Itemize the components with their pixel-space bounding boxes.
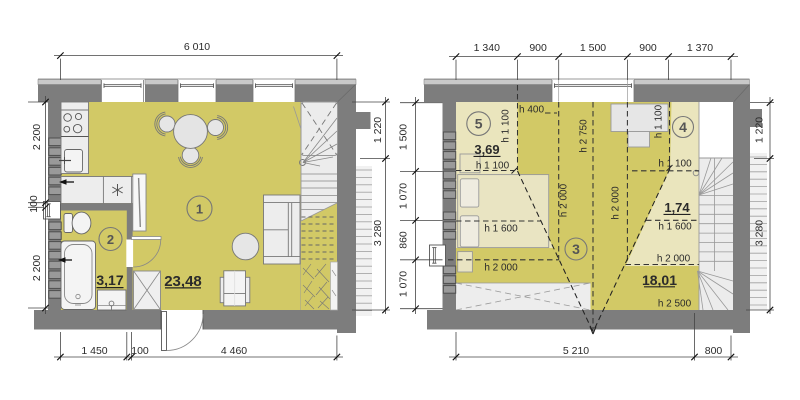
svg-text:1 500: 1 500 (580, 42, 606, 54)
svg-text:4 460: 4 460 (221, 345, 247, 357)
svg-text:1: 1 (196, 202, 203, 217)
svg-text:1 340: 1 340 (474, 42, 500, 54)
svg-text:6 010: 6 010 (184, 41, 210, 53)
svg-text:900: 900 (639, 42, 657, 54)
svg-text:3: 3 (572, 241, 580, 257)
svg-text:5 210: 5 210 (563, 345, 589, 357)
svg-text:3 280: 3 280 (754, 220, 766, 246)
svg-text:h 2 500: h 2 500 (658, 299, 692, 310)
svg-text:h 2 000: h 2 000 (484, 263, 518, 274)
svg-text:18,01: 18,01 (642, 272, 677, 288)
svg-text:2 200: 2 200 (31, 124, 43, 150)
svg-text:100: 100 (131, 345, 149, 357)
svg-text:1 500: 1 500 (398, 124, 410, 150)
svg-text:800: 800 (705, 345, 723, 357)
svg-text:h 2 000: h 2 000 (559, 183, 570, 217)
svg-text:2 200: 2 200 (31, 255, 43, 281)
svg-text:h 2 000: h 2 000 (611, 186, 622, 220)
svg-text:h 2 750: h 2 750 (579, 119, 590, 153)
svg-text:h 1 100: h 1 100 (654, 104, 665, 138)
svg-text:h 1 600: h 1 600 (484, 224, 518, 235)
svg-text:5: 5 (475, 116, 483, 132)
svg-text:2: 2 (107, 232, 114, 247)
svg-text:100: 100 (28, 195, 40, 213)
svg-text:h 2 000: h 2 000 (657, 254, 691, 265)
svg-text:1 070: 1 070 (398, 271, 410, 297)
svg-text:1 220: 1 220 (754, 117, 766, 143)
svg-text:1 370: 1 370 (687, 42, 713, 54)
svg-text:h 1 100: h 1 100 (501, 109, 512, 143)
svg-text:900: 900 (529, 42, 547, 54)
svg-text:1 070: 1 070 (398, 183, 410, 209)
svg-text:h 1 100: h 1 100 (476, 160, 510, 171)
svg-text:h 1 100: h 1 100 (658, 158, 692, 169)
svg-text:h 1 600: h 1 600 (658, 222, 692, 233)
svg-text:860: 860 (398, 231, 410, 249)
svg-text:1,74: 1,74 (664, 200, 690, 215)
svg-text:3,17: 3,17 (96, 272, 123, 288)
svg-text:h 400: h 400 (519, 105, 544, 116)
svg-text:1 220: 1 220 (372, 117, 384, 143)
svg-text:3 280: 3 280 (372, 220, 384, 246)
svg-text:4: 4 (679, 119, 687, 135)
svg-text:3,69: 3,69 (474, 142, 499, 157)
svg-text:1 450: 1 450 (81, 345, 107, 357)
